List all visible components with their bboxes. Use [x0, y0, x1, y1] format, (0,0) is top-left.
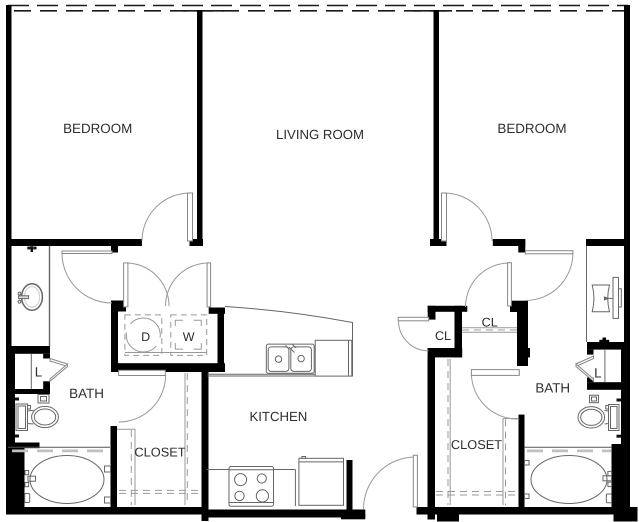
svg-text:L: L: [35, 364, 42, 379]
svg-text:LIVING ROOM: LIVING ROOM: [276, 127, 364, 142]
svg-text:CL: CL: [435, 329, 451, 343]
svg-text:BEDROOM: BEDROOM: [63, 121, 132, 136]
svg-text:CLOSET: CLOSET: [451, 437, 502, 452]
svg-text:D: D: [141, 330, 150, 344]
svg-text:BEDROOM: BEDROOM: [497, 121, 566, 136]
svg-text:CL: CL: [482, 316, 498, 330]
svg-text:BATH: BATH: [69, 386, 104, 401]
svg-text:KITCHEN: KITCHEN: [249, 409, 307, 424]
svg-text:CLOSET: CLOSET: [134, 444, 185, 459]
svg-text:W: W: [183, 330, 195, 344]
svg-text:BATH: BATH: [535, 381, 570, 396]
svg-text:L: L: [594, 366, 601, 381]
